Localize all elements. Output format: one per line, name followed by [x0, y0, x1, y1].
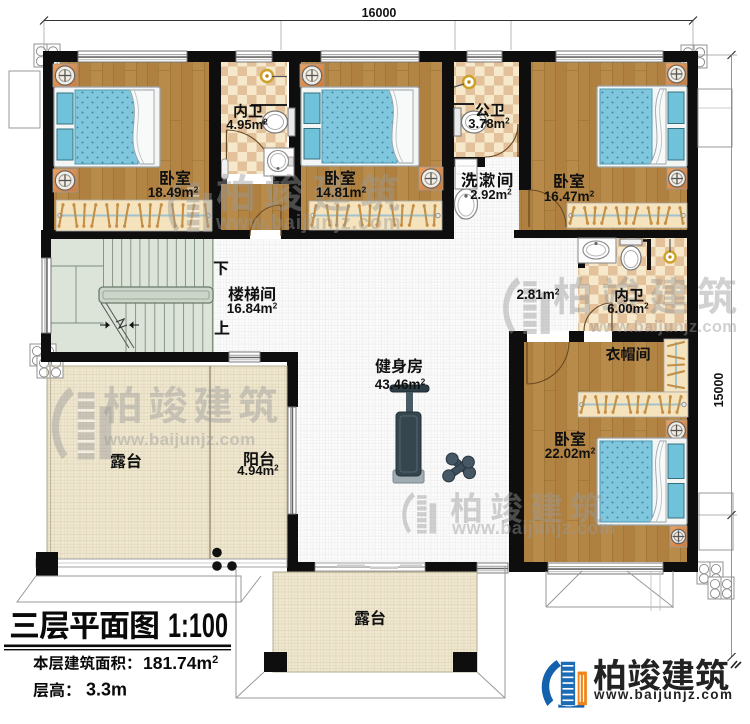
- svg-text:43.46m2: 43.46m2: [375, 376, 426, 392]
- svg-text:www.baijunjz.com: www.baijunjz.com: [593, 687, 732, 702]
- svg-text:16.84m2: 16.84m2: [227, 300, 278, 316]
- svg-text:18.49m2: 18.49m2: [148, 184, 199, 200]
- svg-text:15000: 15000: [712, 373, 726, 408]
- svg-text:www.baijunjz.com: www.baijunjz.com: [451, 518, 615, 538]
- svg-text:3.78m2: 3.78m2: [468, 116, 510, 131]
- svg-text:4.95m2: 4.95m2: [226, 117, 268, 132]
- svg-text:14.81m2: 14.81m2: [316, 184, 367, 200]
- svg-text:181.74m2: 181.74m2: [143, 653, 218, 673]
- svg-text:16.47m2: 16.47m2: [544, 188, 595, 204]
- svg-text:6.00m2: 6.00m2: [607, 301, 649, 316]
- svg-text:22.02m2: 22.02m2: [545, 445, 596, 461]
- svg-text:2.92m2: 2.92m2: [470, 187, 512, 202]
- svg-text:www.baijunjz.com: www.baijunjz.com: [215, 212, 401, 234]
- svg-text:16000: 16000: [362, 6, 397, 20]
- svg-text:3.3m: 3.3m: [86, 680, 127, 700]
- svg-text:www.baijunjz.com: www.baijunjz.com: [589, 318, 737, 336]
- svg-text:4.94m2: 4.94m2: [237, 463, 279, 478]
- svg-text:www.baijunjz.com: www.baijunjz.com: [103, 430, 256, 449]
- svg-text:2.81m2: 2.81m2: [517, 286, 560, 302]
- svg-text:1:100: 1:100: [168, 607, 228, 645]
